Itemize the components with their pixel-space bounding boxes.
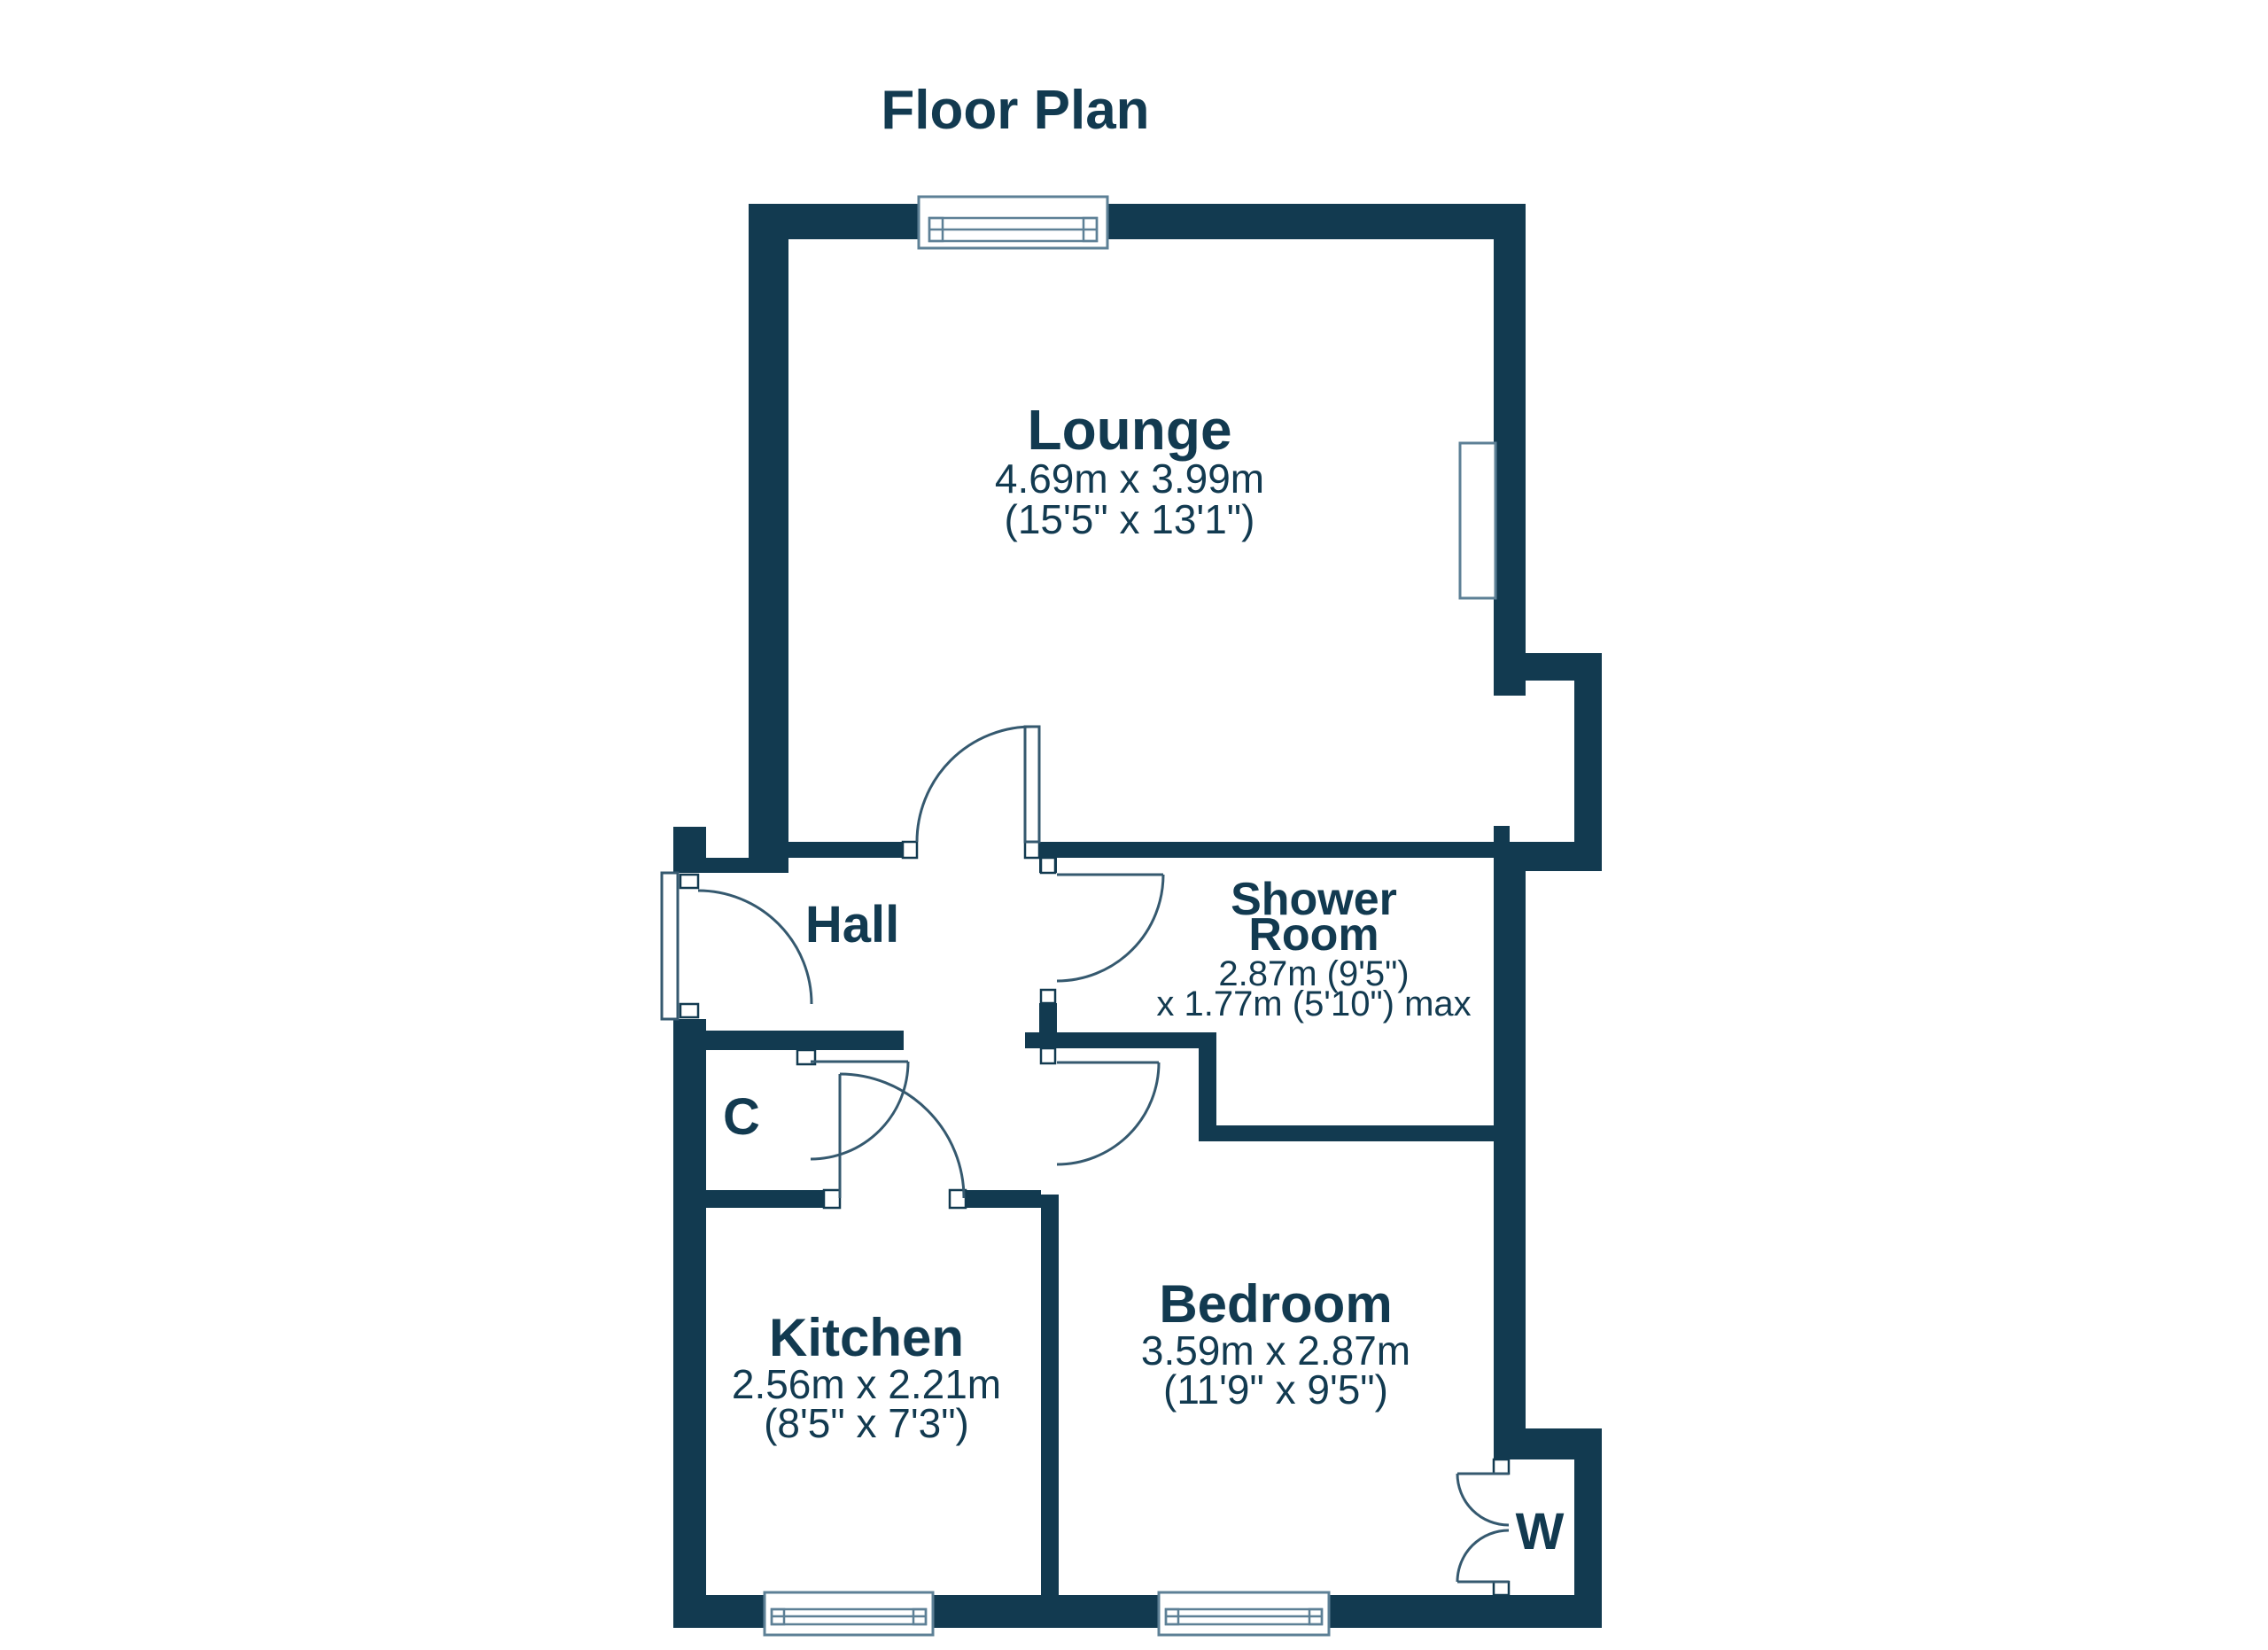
lounge-right-window (1460, 443, 1495, 598)
cupboard-label: C (723, 1088, 760, 1146)
wardrobe-doors (1457, 1474, 1509, 1582)
wardrobe-name: W (1516, 1503, 1565, 1560)
hall-label: Hall (805, 896, 899, 953)
shower-name-line2: Room (1248, 909, 1379, 961)
floor-plan-drawing: Floor Plan Lounge 4.69m x 3.99m (15'5" x… (0, 0, 2268, 1650)
lounge-door (917, 727, 1039, 842)
kitchen-name: Kitchen (769, 1308, 964, 1367)
wall-kitchen-bedroom (1041, 1195, 1059, 1595)
jamb-lounge-door-right (1025, 842, 1039, 858)
shower-door (1057, 875, 1163, 981)
wall-lounge-bottom-corner (1526, 842, 1602, 871)
wardrobe-label: W (1516, 1503, 1565, 1560)
wall-shower-bottom (1199, 1125, 1526, 1141)
cupboard-name: C (723, 1088, 760, 1146)
jamb-kitchen-door-left (824, 1190, 840, 1208)
kitchen-label: Kitchen 2.56m x 2.21m (8'5" x 7'3") (732, 1308, 1001, 1446)
wall-outer-right-upper (1574, 653, 1602, 871)
wall-lounge-left (749, 204, 788, 858)
wall-bedroom-right (1494, 1141, 1526, 1459)
front-door-arc (698, 891, 812, 1004)
lounge-name: Lounge (1027, 398, 1231, 462)
page-title: Floor Plan (881, 80, 1149, 141)
wall-hall-bedroom (1025, 1032, 1216, 1048)
lounge-door-leaf (1025, 727, 1039, 842)
wall-recess-stub (1494, 826, 1510, 844)
shower-room-label: Shower Room 2.87m (9'5") x 1.77m (5'10")… (1156, 874, 1471, 1023)
wall-lounge-top (749, 204, 1526, 239)
lounge-top-window (919, 197, 1107, 248)
shower-dims-line2: x 1.77m (5'10") max (1156, 985, 1471, 1023)
lounge-dims-metric: 4.69m x 3.99m (995, 455, 1264, 502)
lounge-door-arc (917, 727, 1032, 842)
wall-outer-left (673, 1019, 706, 1628)
front-door (662, 873, 812, 1019)
jamb-wardrobe-top (1494, 1459, 1509, 1474)
jamb-front-door-top (680, 875, 698, 888)
jamb-front-door-bottom (680, 1004, 698, 1017)
bedroom-name: Bedroom (1159, 1274, 1392, 1334)
wall-hall-shower-lower (1039, 1003, 1057, 1032)
wall-hall-cupboard (706, 1031, 904, 1050)
jamb-shower-door-top (1041, 858, 1055, 873)
bedroom-window (1159, 1592, 1329, 1635)
floor-plan-page: Floor Plan Lounge 4.69m x 3.99m (15'5" x… (0, 0, 2268, 1650)
jamb-lounge-door-left (903, 842, 917, 858)
bedroom-door (1057, 1062, 1159, 1164)
wardrobe-door-top-arc (1457, 1474, 1509, 1525)
jamb-shower-door-bottom (1041, 990, 1055, 1003)
wall-lounge-bottom-left (749, 842, 903, 858)
wall-hall-kitchen (966, 1190, 1041, 1208)
bedroom-door-arc (1057, 1062, 1159, 1164)
hall-name: Hall (805, 896, 899, 953)
jamb-bedroom-door (1041, 1048, 1055, 1063)
shower-door-arc (1057, 875, 1163, 981)
bedroom-label: Bedroom 3.59m x 2.87m (11'9" x 9'5") (1141, 1274, 1410, 1413)
wardrobe-door-bottom-arc (1457, 1530, 1509, 1582)
jamb-wardrobe-bottom (1494, 1582, 1509, 1595)
wall-cupboard-kitchen (706, 1190, 824, 1208)
wall-lounge-bottom-right (1039, 842, 1526, 858)
bedroom-dims-imperial: (11'9" x 9'5") (1163, 1366, 1388, 1413)
lounge-label: Lounge 4.69m x 3.99m (15'5" x 13'1") (995, 398, 1264, 542)
kitchen-window (765, 1592, 933, 1635)
front-door-leaf (662, 873, 678, 1019)
wall-hall-topleft-block (673, 827, 706, 873)
wall-shower-right (1494, 858, 1526, 1141)
wall-lounge-right (1494, 204, 1526, 696)
kitchen-dims-imperial: (8'5" x 7'3") (764, 1400, 969, 1446)
wall-hall-top-band (706, 858, 788, 873)
lounge-dims-imperial: (15'5" x 13'1") (1005, 496, 1255, 542)
